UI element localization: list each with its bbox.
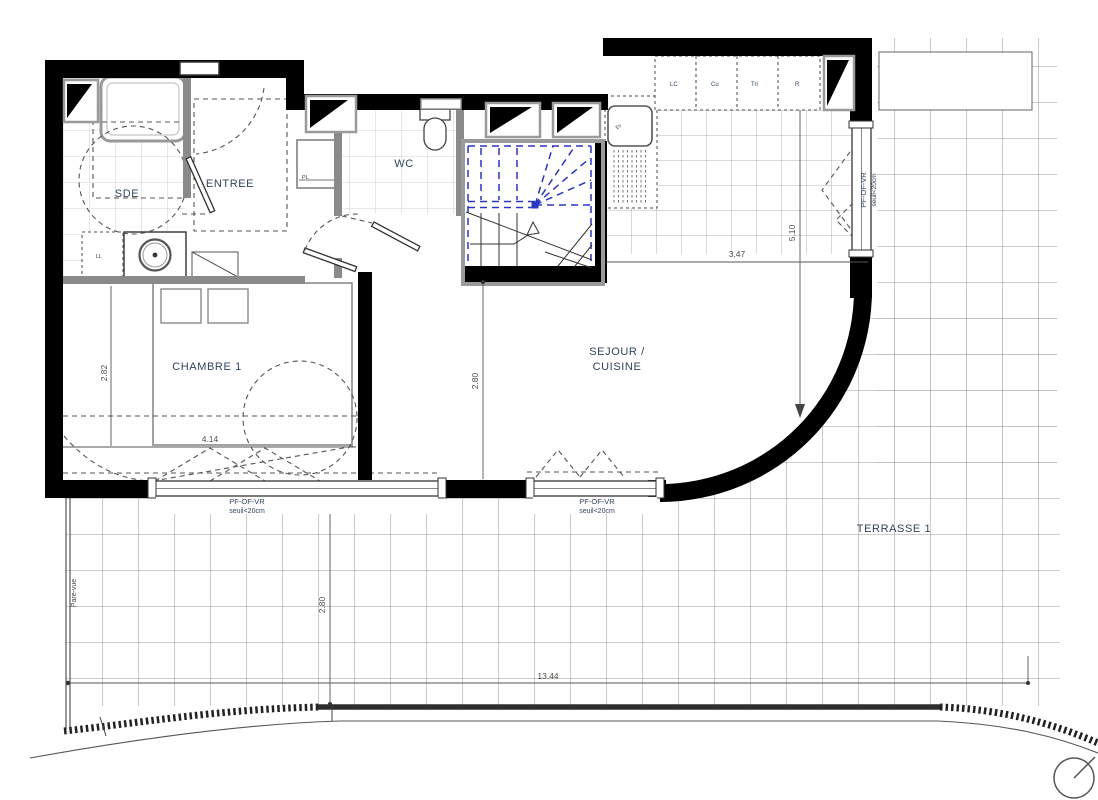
dim-sejour-depth: 2.80 [470,372,480,389]
label-terrasse: TERRASSE 1 [857,523,931,535]
window-stair-1 [486,103,540,137]
dim-chambre-depth: 2.82 [99,364,109,381]
wall-chambre-sejour [358,272,372,480]
kitchen-cabinets: LC Cu Tri R [655,56,820,110]
dim-sejour-width: 3.47 [729,249,746,259]
wall-bottom-chambre [45,480,153,498]
shower-tray [101,77,185,141]
wc-door-leaf [372,222,420,251]
partition-sde-chambre [63,276,305,284]
wall-top-kitchen [603,38,872,56]
label-sde: SDE [115,188,139,200]
window-sejour-type: PF-OF-VR [579,497,615,506]
washer-label: LL [96,254,102,260]
stair-hub [532,202,539,209]
wall-bottom-middle [441,480,531,498]
window-stair-2 [553,103,600,137]
entry-closet: PL [297,140,337,188]
window-chambre [148,478,446,498]
window-terrace-sill: seuil<20cm [871,173,878,206]
cabinet-label-cu: Cu [711,82,719,88]
stair-walk-line [470,222,592,268]
washbasin [124,232,186,278]
compass-icon [1054,757,1095,798]
window-sejour [526,478,664,498]
window-terrace-type: PF-OF-VR [859,172,868,208]
label-entree: ENTREE [206,178,254,190]
label-wc: WC [394,158,414,170]
pare-vue-label: Pare-vue [71,579,78,608]
floor-plan-page: LL PL Ev [0,0,1098,800]
stair-enclosure [463,141,603,284]
window-toilet [421,99,461,109]
entree-zone [194,99,287,231]
label-sejour-1: SEJOUR / [589,346,645,358]
toilet [420,106,450,150]
dim-terrasse-depth: 2.80 [317,596,327,613]
entry-door-swing [196,88,264,154]
wc-door-swing [342,216,372,223]
chambre-door-leaf [303,248,356,272]
cabinet-label-r: R [795,82,800,88]
terrace-rail-curve-right [940,707,1098,743]
cabinet-label-tri: Tri [751,82,758,88]
entry-door-leaf [180,62,219,75]
terrace-outer-line [30,721,1098,758]
cabinet-label-lc: LC [670,82,678,88]
window-chambre-sill: seuil<20cm [229,508,265,515]
wall-stair-bottom [465,266,601,282]
window-chambre-type: PF-OF-VR [229,497,265,506]
dim-sejour-length: 5.10 [787,224,797,241]
washing-machine: LL [82,232,123,278]
chambre-door-swing [305,214,358,250]
terrace-rail-curve-left [64,707,320,731]
label-sejour-2: CUISINE [593,361,642,373]
closet-label: PL [302,175,309,181]
wall-top-entree [45,60,304,78]
stair-headroom-lines [468,146,591,264]
staircase [466,146,592,268]
stair-treads [466,212,592,266]
wall-left [45,60,63,498]
window-wc-left [306,96,356,132]
neighbor-area [879,52,1032,110]
dim-terrasse-width: 13.44 [537,671,559,681]
window-sde [64,80,98,122]
window-sejour-sill: seuil<20cm [579,508,615,515]
window-kitchen-right [824,56,854,110]
label-chambre: CHAMBRE 1 [172,361,242,373]
under-stair-triangle [192,252,238,277]
partition-sde-entree [183,78,191,198]
kitchen-sink: Ev [605,96,657,208]
dim-chambre-width: 4.14 [202,434,219,444]
floor-plan-svg: LL PL Ev [0,0,1098,800]
